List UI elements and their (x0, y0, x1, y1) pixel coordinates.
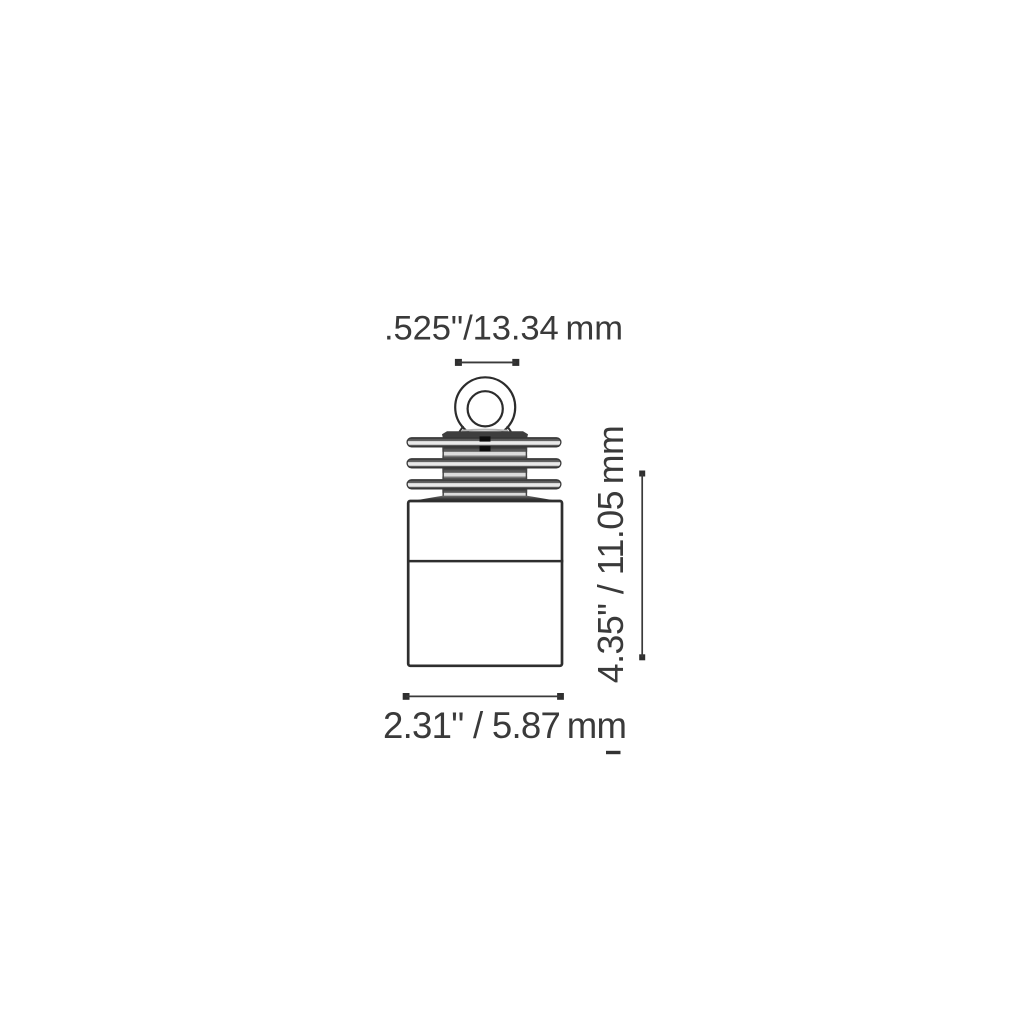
svg-text:.525"/13.34 mm: .525"/13.34 mm (384, 309, 623, 347)
svg-text:2.31" / 5.87 mm: 2.31" / 5.87 mm (383, 705, 627, 746)
svg-text:4.35" / 11.05 mm: 4.35" / 11.05 mm (591, 425, 631, 683)
